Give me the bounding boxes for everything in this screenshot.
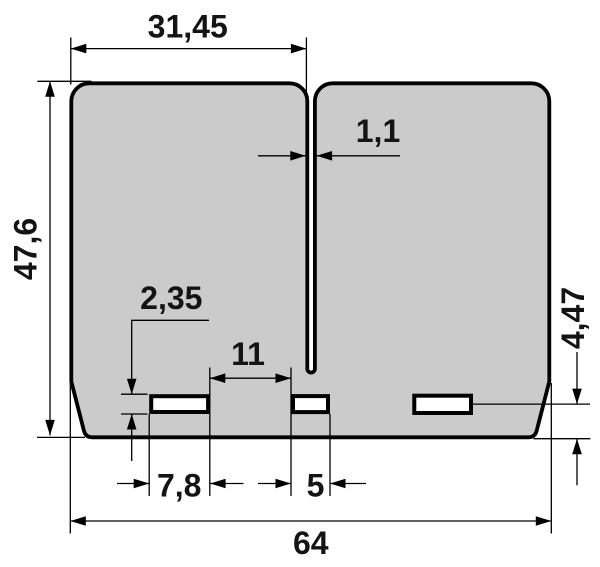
svg-text:64: 64	[293, 525, 329, 561]
svg-text:31,45: 31,45	[148, 8, 228, 44]
svg-text:11: 11	[231, 336, 265, 372]
svg-text:4,47: 4,47	[555, 287, 591, 349]
svg-text:47,6: 47,6	[8, 218, 44, 280]
svg-text:5: 5	[307, 468, 325, 504]
svg-text:7,8: 7,8	[157, 468, 201, 504]
svg-text:2,35: 2,35	[140, 280, 202, 316]
svg-text:1,1: 1,1	[356, 113, 400, 149]
